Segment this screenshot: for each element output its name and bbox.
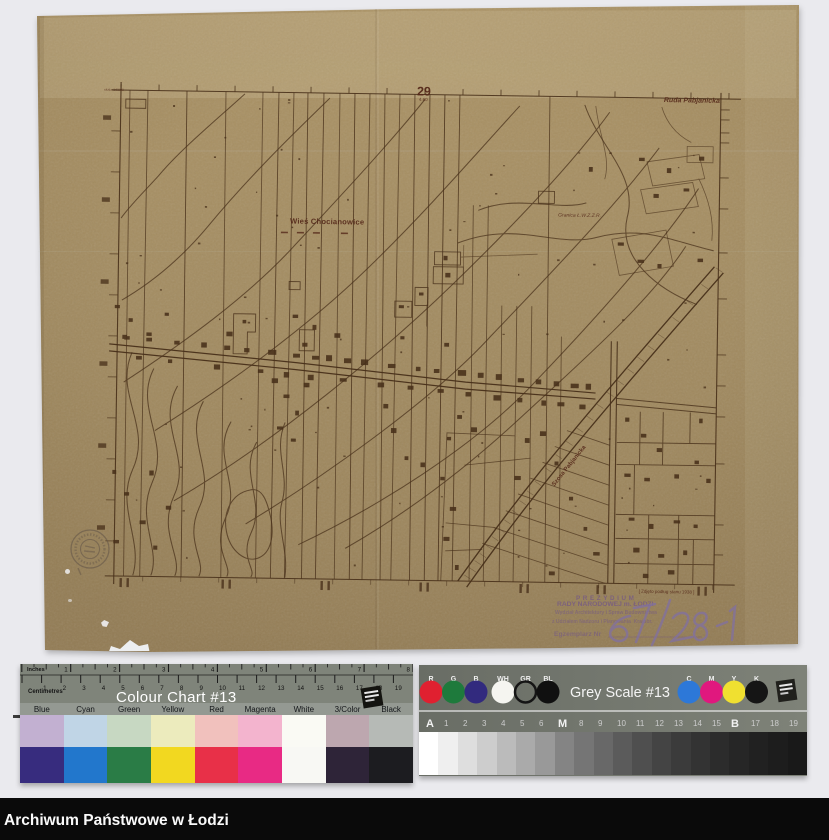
svg-text:1: 1 [64, 667, 68, 674]
svg-text:18: 18 [770, 719, 779, 728]
svg-text:4: 4 [211, 667, 215, 674]
svg-text:Ruda Pabjanicka: Ruda Pabjanicka [664, 97, 720, 105]
svg-text:[ Zdjęto podług stanu 1938 ]: [ Zdjęto podług stanu 1938 ] [639, 589, 695, 595]
svg-text:13: 13 [674, 719, 683, 728]
svg-text:5: 5 [260, 667, 264, 674]
svg-text:1: 1 [444, 719, 449, 728]
svg-text:Granica Ł.W.Z.Z.R.: Granica Ł.W.Z.Z.R. [558, 212, 601, 219]
svg-text:15: 15 [712, 719, 721, 728]
svg-text:skala 1:5000: skala 1:5000 [104, 88, 124, 92]
svg-text:3: 3 [82, 685, 86, 692]
svg-text:Centimetres: Centimetres [28, 689, 63, 694]
svg-text:B: B [731, 718, 739, 730]
svg-text:9: 9 [598, 719, 603, 728]
svg-text:12: 12 [655, 719, 664, 728]
svg-text:4: 4 [102, 685, 106, 692]
svg-text:8: 8 [579, 719, 584, 728]
svg-text:6: 6 [309, 667, 313, 674]
svg-text:11: 11 [636, 719, 645, 728]
svg-text:Wieś Chocianowice: Wieś Chocianowice [290, 217, 364, 227]
svg-text:19: 19 [395, 685, 402, 692]
svg-text:17: 17 [751, 719, 760, 728]
svg-text:Inches: Inches [27, 667, 45, 673]
svg-text:10: 10 [617, 719, 626, 728]
svg-text:Wydział Architektury i Spraw B: Wydział Architektury i Spraw Budownictwa [555, 610, 657, 616]
svg-text:A: A [426, 718, 434, 730]
svg-text:6: 6 [539, 719, 544, 728]
svg-text:8: 8 [407, 667, 411, 674]
svg-text:z Udziałem Nadzoru i Planowani: z Udziałem Nadzoru i Planowania Krajobr. [552, 619, 653, 625]
svg-text:M: M [558, 718, 567, 730]
svg-text:3: 3 [162, 667, 166, 674]
svg-text:4: 4 [501, 719, 506, 728]
svg-text:14: 14 [693, 719, 702, 728]
svg-text:5: 5 [520, 719, 525, 728]
svg-text:2: 2 [113, 667, 117, 674]
svg-text:3: 3 [482, 719, 487, 728]
svg-text:Egzemplarz Nr: Egzemplarz Nr [554, 631, 602, 638]
svg-text:19: 19 [789, 719, 798, 728]
svg-text:2: 2 [63, 685, 67, 692]
svg-text:4.60: 4.60 [419, 97, 428, 102]
svg-text:2: 2 [463, 719, 468, 728]
svg-text:Grey Scale #13: Grey Scale #13 [570, 685, 670, 701]
svg-text:7: 7 [358, 667, 362, 674]
